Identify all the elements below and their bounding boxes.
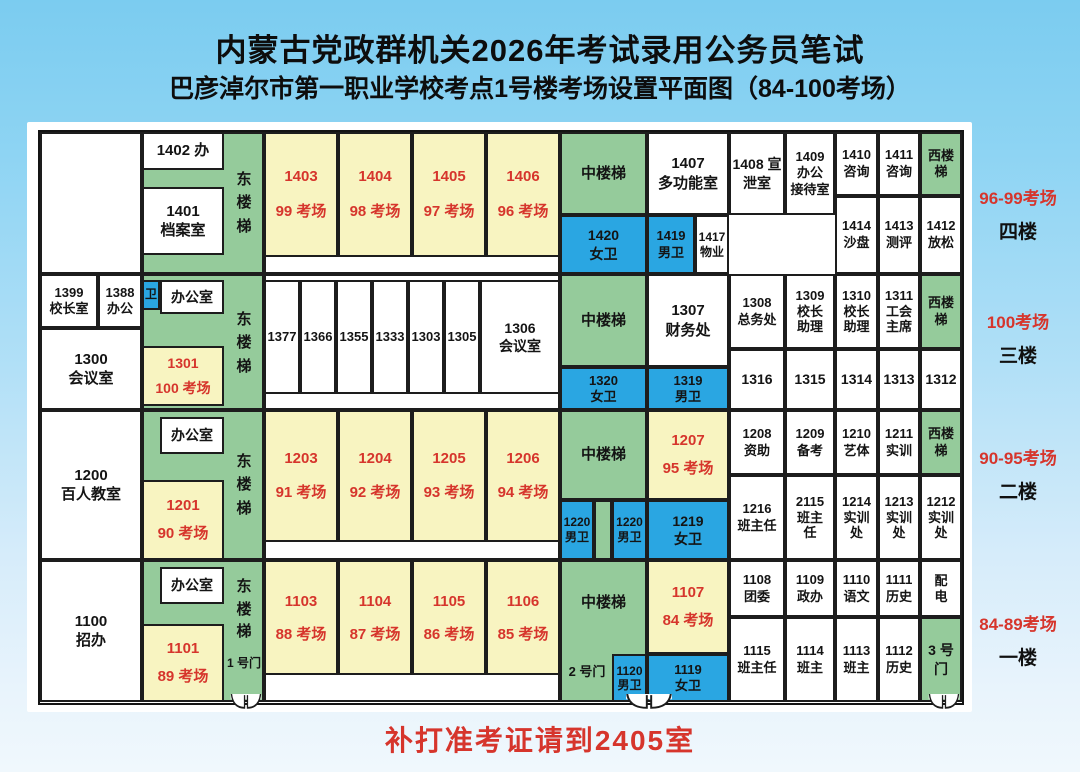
- room-1206: 120694 考场: [486, 410, 560, 542]
- room-west-stair-f4: 西楼梯: [920, 132, 962, 196]
- exam-venue-poster: 内蒙古党政群机关2026年考试录用公务员笔试 巴彦淖尔市第一职业学校考点1号楼考…: [0, 0, 1080, 772]
- room-gate2-label: 2 号门: [560, 660, 614, 684]
- room-1200: 1200百人教室: [40, 410, 142, 560]
- room-1306: 1306会议室: [480, 280, 560, 394]
- room-1114: 1114班主: [785, 617, 835, 702]
- room-east-stair-f1: 东楼梯: [224, 568, 264, 652]
- room-1366: 1366: [300, 280, 336, 394]
- room-1105: 110586 考场: [412, 560, 486, 675]
- room-1220-east: 1220男卫: [612, 500, 647, 560]
- room-east-stair-f3: 东楼梯: [224, 290, 264, 396]
- room-office-f3: 办公室: [160, 280, 224, 314]
- room-1316: 1316: [729, 349, 785, 410]
- rail-label-floor4: 96-99考场 四楼: [962, 184, 1074, 244]
- room-1201: 120190 考场: [142, 480, 224, 560]
- room-gate1-label: 1 号门: [224, 654, 264, 674]
- room-1402: 1402 办: [142, 132, 224, 170]
- room-office-f1: 办公室: [160, 567, 224, 604]
- room-1315: 1315: [785, 349, 835, 410]
- room-1305: 1305: [444, 280, 480, 394]
- room-1410: 1410咨询: [835, 132, 878, 196]
- room-1320: 1320女卫: [560, 367, 647, 410]
- room-1301: 1301100 考场: [142, 346, 224, 406]
- room-1219: 1219女卫: [647, 500, 729, 560]
- room-1314: 1314: [835, 349, 878, 410]
- room-1388: 1388办公: [98, 274, 142, 328]
- floor-plan: 1402 办1401档案室东楼梯140399 考场140498 考场140597…: [38, 130, 964, 705]
- room-east-stair-f2: 东楼梯: [224, 432, 264, 538]
- gate-2-door: [625, 694, 673, 711]
- floor-plan-panel: 1402 办1401档案室东楼梯140399 考场140498 考场140597…: [27, 122, 972, 712]
- page-title: 内蒙古党政群机关2026年考试录用公务员笔试: [0, 25, 1080, 70]
- gate-3-door: [928, 694, 960, 711]
- room-1404: 140498 考场: [338, 132, 412, 257]
- room-1103: 110388 考场: [264, 560, 338, 675]
- room-1407: 1407多功能室: [647, 132, 729, 215]
- room-1107: 110784 考场: [647, 560, 729, 654]
- floor3-room-range: 100考场: [962, 308, 1074, 333]
- footer-notice: 补打准考证请到2405室: [0, 719, 1080, 759]
- room-mid-stair-f1-label: 中楼梯: [560, 590, 647, 616]
- room-1220-west: 1220男卫: [560, 500, 594, 560]
- room-1106: 110685 考场: [486, 560, 560, 675]
- rail-label-floor3: 100考场 三楼: [962, 308, 1074, 368]
- room-1307: 1307财务处: [647, 274, 729, 367]
- room-1333: 1333: [372, 280, 408, 394]
- room-1207: 120795 考场: [647, 410, 729, 500]
- room-1204: 120492 考场: [338, 410, 412, 542]
- room-1419: 1419男卫: [647, 215, 695, 274]
- room-1110: 1110语文: [835, 560, 878, 617]
- room-1101: 110189 考场: [142, 624, 224, 702]
- floor3-name: 三楼: [962, 341, 1074, 368]
- room-1406: 140696 考场: [486, 132, 560, 257]
- room-west-stair-f2: 西楼梯: [920, 410, 962, 475]
- room-power-room: 配电: [920, 560, 962, 617]
- room-1412: 1412放松: [920, 196, 962, 274]
- room-1115: 1115班主任: [729, 617, 785, 702]
- room-1405: 140597 考场: [412, 132, 486, 257]
- room-1313: 1313: [878, 349, 920, 410]
- room-f4-empty: [40, 132, 142, 274]
- floor2-room-range: 90-95考场: [962, 444, 1074, 469]
- floor1-name: 一楼: [962, 643, 1074, 670]
- room-1203: 120391 考场: [264, 410, 338, 542]
- room-1312: 1312: [920, 349, 962, 410]
- floor4-name: 四楼: [962, 217, 1074, 244]
- room-mid-stair-f4: 中楼梯: [560, 132, 647, 215]
- room-mid-stair-f2: 中楼梯: [560, 410, 647, 500]
- room-1310: 1310校长助理: [835, 274, 878, 349]
- rail-label-floor1: 84-89考场 一楼: [962, 610, 1074, 670]
- room-1213: 1213实训处: [878, 475, 920, 560]
- room-1111: 1111历史: [878, 560, 920, 617]
- room-1319: 1319男卫: [647, 367, 729, 410]
- room-mid-stair-f3: 中楼梯: [560, 274, 647, 367]
- room-1300: 1300会议室: [40, 328, 142, 410]
- room-west-stair-f3: 西楼梯: [920, 274, 962, 349]
- room-1309: 1309校长助理: [785, 274, 835, 349]
- room-1413: 1413测评: [878, 196, 920, 274]
- room-1408: 1408 宣泄室: [729, 132, 785, 215]
- room-1113: 1113班主: [835, 617, 878, 702]
- room-1409: 1409办公接待室: [785, 132, 835, 215]
- room-1355: 1355: [336, 280, 372, 394]
- room-1214: 1214实训处: [835, 475, 878, 560]
- room-office-f2: 办公室: [160, 417, 224, 454]
- room-1399: 1399校长室: [40, 274, 98, 328]
- rail-label-floor2: 90-95考场 二楼: [962, 444, 1074, 504]
- room-1216: 1216班主任: [729, 475, 785, 560]
- gate-1-door: [230, 694, 262, 711]
- room-1311: 1311工会主席: [878, 274, 920, 349]
- room-1417: 1417物业: [695, 215, 729, 274]
- room-2115: 2115班主任: [785, 475, 835, 560]
- floor2-name: 二楼: [962, 477, 1074, 504]
- room-1209: 1209备考: [785, 410, 835, 475]
- room-1420: 1420女卫: [560, 215, 647, 274]
- floor4-room-range: 96-99考场: [962, 184, 1074, 209]
- room-1401: 1401档案室: [142, 187, 224, 255]
- page-subtitle: 巴彦淖尔市第一职业学校考点1号楼考场设置平面图（84-100考场）: [0, 69, 1080, 105]
- room-1100: 1100招办: [40, 560, 142, 702]
- room-1212: 1212实训处: [920, 475, 962, 560]
- room-1414: 1414沙盘: [835, 196, 878, 274]
- room-1303: 1303: [408, 280, 444, 394]
- room-1308: 1308总务处: [729, 274, 785, 349]
- room-1377: 1377: [264, 280, 300, 394]
- floor1-room-range: 84-89考场: [962, 610, 1074, 635]
- room-1211: 1211实训: [878, 410, 920, 475]
- room-1210: 1210艺体: [835, 410, 878, 475]
- room-east-stair-f4: 东楼梯: [224, 148, 264, 258]
- room-1108: 1108团委: [729, 560, 785, 617]
- room-gate3: 3 号门: [920, 617, 962, 702]
- room-1411: 1411咨询: [878, 132, 920, 196]
- room-1205: 120593 考场: [412, 410, 486, 542]
- room-1403: 140399 考场: [264, 132, 338, 257]
- room-wc-small: 卫: [142, 280, 160, 310]
- room-1208: 1208资助: [729, 410, 785, 475]
- room-stair-gap-f2: [594, 500, 612, 560]
- room-1104: 110487 考场: [338, 560, 412, 675]
- room-1112: 1112历史: [878, 617, 920, 702]
- room-1109: 1109政办: [785, 560, 835, 617]
